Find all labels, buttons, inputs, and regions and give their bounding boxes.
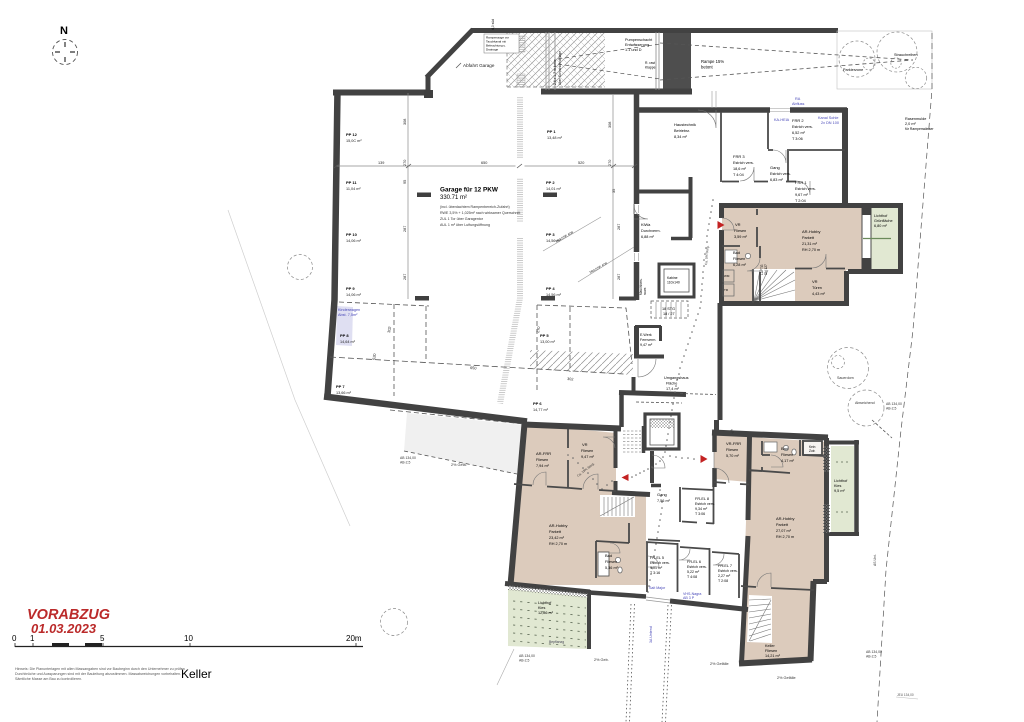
svg-text:Abfahrt Garage: Abfahrt Garage — [463, 63, 495, 68]
svg-text:PP 6: PP 6 — [533, 401, 542, 406]
svg-text:AB 134,00: AB 134,00 — [886, 402, 902, 406]
svg-text:PP 8: PP 8 — [340, 333, 349, 338]
svg-text:95: 95 — [403, 180, 407, 184]
svg-text:AB-2,5: AB-2,5 — [519, 659, 529, 663]
svg-text:7,94 m²: 7,94 m² — [536, 464, 550, 468]
svg-text:2% Gefälle: 2% Gefälle — [710, 662, 729, 666]
svg-text:VR-FRR: VR-FRR — [726, 441, 741, 446]
svg-text:17,4 m²: 17,4 m² — [666, 387, 680, 391]
svg-text:Parkett: Parkett — [802, 236, 815, 240]
svg-text:13,48 m²: 13,48 m² — [547, 136, 563, 140]
svg-text:13,00 m²: 13,00 m² — [540, 340, 556, 344]
svg-text:PP 2: PP 2 — [546, 180, 555, 185]
svg-text:für Rampenwässer: für Rampenwässer — [905, 127, 934, 131]
svg-text:FR-EL 8: FR-EL 8 — [695, 497, 709, 501]
svg-text:Klappe: Klappe — [645, 66, 656, 70]
svg-text:14,21 m²: 14,21 m² — [765, 654, 781, 658]
svg-text:AB-2,5: AB-2,5 — [400, 461, 410, 465]
svg-text:raum: raum — [643, 287, 647, 295]
svg-text:KiWa: KiWa — [641, 222, 651, 227]
svg-text:Fliesen: Fliesen — [765, 649, 777, 653]
svg-text:Sämtliche Masse am Bau zu kont: Sämtliche Masse am Bau zu kontrollieren. — [15, 677, 82, 681]
svg-text:Pumpenschacht: Pumpenschacht — [625, 38, 653, 42]
svg-text:AUL 1 m² über Luftungsöffnung: AUL 1 m² über Luftungsöffnung — [440, 223, 490, 227]
svg-text:9,47 m²: 9,47 m² — [581, 455, 595, 459]
svg-text:Fliesen: Fliesen — [781, 453, 793, 457]
svg-text:Haustechnik: Haustechnik — [674, 122, 696, 127]
svg-text:Drainage: Drainage — [486, 48, 499, 52]
svg-text:VR: VR — [812, 279, 818, 284]
svg-text:Fliesen: Fliesen — [726, 448, 738, 452]
svg-text:139: 139 — [378, 161, 384, 165]
svg-text:14,64 m²: 14,64 m² — [340, 340, 356, 344]
svg-text:VR: VR — [735, 222, 741, 227]
svg-text:Estrich vers.: Estrich vers. — [770, 172, 791, 176]
svg-text:2% Gefälle: 2% Gefälle — [777, 676, 796, 680]
svg-text:T 4:08: T 4:08 — [687, 575, 697, 579]
svg-text:2,27 m²: 2,27 m² — [718, 574, 731, 578]
svg-text:14,06 m²: 14,06 m² — [346, 293, 362, 297]
svg-text:Estrich vers.: Estrich vers. — [687, 565, 707, 569]
svg-text:Gang: Gang — [770, 165, 780, 170]
svg-text:Türen: Türen — [812, 286, 822, 290]
svg-text:5,36 m²: 5,36 m² — [605, 566, 619, 570]
svg-text:287: 287 — [617, 224, 621, 230]
svg-text:WM: WM — [724, 274, 730, 278]
svg-text:Fliesen: Fliesen — [605, 560, 617, 564]
svg-text:Fläche: Fläche — [666, 382, 677, 386]
svg-text:PP 11: PP 11 — [346, 180, 357, 185]
svg-text:9,34 m²: 9,34 m² — [695, 507, 708, 511]
svg-text:PP 5: PP 5 — [540, 333, 549, 338]
svg-text:Parkierzone: Parkierzone — [843, 68, 863, 72]
svg-text:5,70 m²: 5,70 m² — [726, 454, 740, 458]
svg-text:AB-2,5: AB-2,5 — [866, 655, 876, 659]
svg-text:27,07 m²: 27,07 m² — [776, 529, 792, 533]
svg-text:35: 35 — [612, 189, 616, 193]
svg-text:T 2:08: T 2:08 — [718, 579, 728, 583]
svg-text:Lichthof: Lichthof — [538, 601, 552, 605]
svg-text:(incl. überdachtem Rampenberei: (incl. überdachtem Rampenbereich-Zufahrt… — [440, 205, 510, 209]
svg-text:Strauchreihen: Strauchreihen — [894, 53, 918, 57]
svg-text:Estrich vers.: Estrich vers. — [792, 125, 813, 129]
svg-text:9,5 m²: 9,5 m² — [834, 489, 845, 493]
svg-text:18 STG: 18 STG — [662, 307, 675, 311]
svg-text:AR-Hobby: AR-Hobby — [549, 523, 567, 528]
svg-text:Bepflanzg: Bepflanzg — [549, 640, 564, 644]
svg-text:FRR 3: FRR 3 — [733, 154, 745, 159]
svg-text:JEU 134,00: JEU 134,00 — [897, 693, 914, 697]
svg-text:1: 1 — [30, 634, 35, 643]
svg-text:287: 287 — [617, 274, 621, 280]
svg-text:RA: RA — [795, 97, 801, 101]
svg-text:ZUL 1 Tor über Garagentor: ZUL 1 Tor über Garagentor — [440, 217, 484, 221]
svg-text:betont: betont — [701, 65, 713, 70]
svg-text:PP 7: PP 7 — [336, 384, 345, 389]
svg-text:14,77 m²: 14,77 m² — [533, 408, 549, 412]
svg-text:FR-EL 6: FR-EL 6 — [687, 560, 701, 564]
svg-text:E.Werk: E.Werk — [640, 333, 652, 337]
svg-text:0: 0 — [12, 634, 17, 643]
svg-text:6,52 m²: 6,52 m² — [792, 131, 806, 135]
svg-text:FR-EL 5: FR-EL 5 — [650, 556, 664, 560]
svg-text:3A Untend: 3A Untend — [649, 626, 653, 643]
svg-text:PP 4: PP 4 — [546, 286, 555, 291]
svg-text:4,0 süd: 4,0 süd — [491, 19, 495, 30]
svg-text:AB-2,5: AB-2,5 — [886, 407, 896, 411]
svg-text:Gang: Gang — [657, 492, 667, 497]
svg-text:2% Gefä.: 2% Gefä. — [451, 463, 467, 467]
svg-text:2x DN 100: 2x DN 100 — [821, 121, 839, 125]
svg-text:13,66 m²: 13,66 m² — [336, 391, 352, 395]
svg-text:Bad: Bad — [733, 250, 740, 255]
svg-text:7,56 m²: 7,56 m² — [657, 499, 671, 503]
svg-text:Kabine: Kabine — [667, 276, 678, 280]
svg-text:15,0C m²: 15,0C m² — [346, 139, 362, 143]
svg-text:PP 1: PP 1 — [547, 129, 556, 134]
svg-text:Parkett: Parkett — [549, 530, 562, 534]
svg-text:Fernverm.: Fernverm. — [640, 338, 656, 342]
svg-text:RH 2,70 m: RH 2,70 m — [802, 248, 820, 252]
svg-text:Kinderwagen: Kinderwagen — [338, 308, 360, 312]
svg-text:AR-Hobby: AR-Hobby — [802, 229, 820, 234]
svg-text:Estrich vers.: Estrich vers. — [650, 561, 670, 565]
svg-text:Keller: Keller — [765, 644, 775, 648]
svg-text:AB 3 P: AB 3 P — [683, 596, 695, 600]
svg-text:287: 287 — [403, 226, 407, 232]
svg-text:über Schrankenanlage: über Schrankenanlage — [558, 51, 562, 85]
svg-text:PP 12: PP 12 — [346, 132, 358, 137]
svg-text:Estrich vers.: Estrich vers. — [695, 502, 715, 506]
svg-text:302: 302 — [567, 377, 574, 382]
svg-text:Fliesen: Fliesen — [581, 449, 593, 453]
svg-text:Rasenmulde: Rasenmulde — [905, 117, 926, 121]
svg-text:Abst. 7,5m²: Abst. 7,5m² — [338, 313, 358, 317]
svg-text:4,43 m²: 4,43 m² — [812, 292, 826, 296]
svg-text:DN 127: DN 127 — [764, 264, 768, 275]
svg-text:Sait Major: Sait Major — [649, 586, 666, 590]
svg-text:Fliesen: Fliesen — [733, 257, 745, 261]
svg-text:N: N — [60, 25, 68, 37]
svg-text:Fliesen: Fliesen — [734, 229, 746, 233]
svg-text:Lichthof: Lichthof — [874, 214, 888, 218]
svg-text:R. rast: R. rast — [645, 61, 655, 65]
svg-text:9,67 m²: 9,67 m² — [795, 193, 809, 197]
svg-text:Betriebsr.: Betriebsr. — [674, 129, 690, 133]
svg-text:FR-EL 7: FR-EL 7 — [718, 564, 732, 568]
svg-text:Bad: Bad — [605, 553, 612, 558]
svg-text:T 2:04: T 2:04 — [795, 199, 806, 203]
svg-text:Abfluss: Abfluss — [792, 102, 805, 106]
svg-text:Fliesen: Fliesen — [536, 458, 548, 462]
svg-text:Kies: Kies — [538, 606, 545, 610]
svg-text:650: 650 — [481, 161, 487, 165]
svg-text:14,06 m²: 14,06 m² — [346, 239, 362, 243]
svg-text:AB 134,00: AB 134,00 — [866, 650, 882, 654]
svg-text:PP 10: PP 10 — [346, 232, 358, 237]
svg-text:3,59 m²: 3,59 m² — [734, 235, 748, 239]
svg-text:T 3:06: T 3:06 — [695, 512, 705, 516]
svg-text:23,42 m²: 23,42 m² — [549, 536, 565, 540]
svg-text:2,0 m²: 2,0 m² — [905, 122, 916, 126]
svg-text:20m: 20m — [346, 634, 362, 643]
svg-text:RH 2,70 m: RH 2,70 m — [549, 542, 567, 546]
svg-text:T 4:04: T 4:04 — [733, 173, 744, 177]
svg-text:8,34 m²: 8,34 m² — [674, 135, 688, 139]
svg-text:Abweichend: Abweichend — [855, 401, 875, 405]
svg-text:2,6 x 1,7 m lichte: 2,6 x 1,7 m lichte — [553, 59, 557, 85]
svg-text:Keller: Keller — [181, 667, 212, 681]
svg-text:Rampe 15%: Rampe 15% — [701, 59, 724, 64]
svg-text:6,28 m²: 6,28 m² — [733, 263, 747, 267]
svg-text:Estrich vers.: Estrich vers. — [733, 161, 754, 165]
svg-text:1.1 und D: 1.1 und D — [625, 48, 642, 52]
svg-text:Durchbrüche und Aussparungen s: Durchbrüche und Aussparungen sind mit de… — [15, 672, 181, 676]
svg-text:Kanal Sohle: Kanal Sohle — [818, 116, 838, 120]
svg-text:AR-Hobby: AR-Hobby — [776, 516, 794, 521]
svg-text:T 3:16: T 3:16 — [650, 571, 660, 575]
svg-text:Sauerdorn: Sauerdorn — [837, 376, 854, 380]
svg-text:AB 134,00: AB 134,00 — [400, 456, 416, 460]
svg-text:21,31 m²: 21,31 m² — [802, 242, 818, 246]
svg-text:Entwässerung: Entwässerung — [625, 43, 649, 47]
svg-text:Hinweis: Die Planunterlagen mi: Hinweis: Die Planunterlagen mit allen Ma… — [15, 667, 185, 671]
svg-text:Grünfläche: Grünfläche — [874, 219, 893, 223]
svg-text:T 3:06: T 3:06 — [792, 137, 803, 141]
svg-text:01.03.2023: 01.03.2023 — [31, 621, 97, 636]
svg-text:Garage für 12 PKW: Garage für 12 PKW — [440, 187, 499, 194]
svg-text:6,80 m²: 6,80 m² — [874, 224, 888, 228]
svg-text:Parkett: Parkett — [776, 523, 789, 527]
svg-text:9,47 m²: 9,47 m² — [640, 343, 653, 347]
svg-text:5: 5 — [100, 634, 105, 643]
svg-text:FRR 1: FRR 1 — [795, 180, 807, 185]
svg-text:330.71 m²: 330.71 m² — [440, 195, 467, 201]
svg-text:308: 308 — [608, 122, 612, 128]
svg-text:2% Geb.: 2% Geb. — [594, 658, 609, 662]
svg-text:VR: VR — [582, 442, 588, 447]
svg-text:308: 308 — [403, 119, 407, 125]
svg-text:RH 2,70 m: RH 2,70 m — [776, 535, 794, 539]
svg-text:6,83 m²: 6,83 m² — [770, 178, 784, 182]
svg-text:KA-HEIA: KA-HEIA — [774, 118, 790, 122]
svg-text:11,04 m²: 11,04 m² — [346, 187, 361, 191]
svg-text:5,22 m²: 5,22 m² — [687, 570, 700, 574]
svg-text:Umgangshaus: Umgangshaus — [664, 376, 689, 380]
svg-text:AR-FRR: AR-FRR — [536, 451, 551, 456]
svg-text:Estrich vers.: Estrich vers. — [795, 187, 816, 191]
svg-text:Bad: Bad — [781, 446, 788, 451]
svg-text:4,17 m²: 4,17 m² — [781, 459, 795, 463]
svg-text:Zutr.: Zutr. — [809, 449, 816, 453]
svg-text:18 / 27: 18 / 27 — [663, 312, 675, 316]
svg-text:650: 650 — [470, 366, 477, 371]
svg-text:AB 134,00: AB 134,00 — [519, 654, 535, 658]
svg-text:18,6 m²: 18,6 m² — [733, 167, 747, 171]
svg-text:PP 3: PP 3 — [546, 232, 555, 237]
svg-text:520: 520 — [578, 161, 584, 165]
svg-text:9,01 m²: 9,01 m² — [650, 566, 663, 570]
svg-text:PP 9: PP 9 — [346, 286, 355, 291]
svg-text:270: 270 — [403, 160, 407, 166]
svg-text:14,56 m²: 14,56 m² — [546, 293, 562, 297]
svg-text:14,01 m²: 14,01 m² — [546, 187, 562, 191]
svg-text:Kies: Kies — [834, 484, 841, 488]
svg-text:RWE 3,5% + 1,025m² nach wirksa: RWE 3,5% + 1,025m² nach wirksamer Quersc… — [440, 211, 520, 215]
svg-text:FRR 2: FRR 2 — [792, 118, 804, 123]
svg-text:10: 10 — [184, 634, 193, 643]
svg-text:Estrich vers.: Estrich vers. — [718, 569, 738, 573]
svg-text:110x140: 110x140 — [667, 281, 680, 285]
svg-text:AS Unt.: AS Unt. — [873, 554, 877, 566]
svg-text:12,86 m²: 12,86 m² — [538, 611, 554, 615]
svg-text:270: 270 — [608, 160, 612, 166]
svg-text:Lichthof: Lichthof — [834, 479, 848, 483]
svg-text:Durchverm.: Durchverm. — [641, 229, 661, 233]
svg-text:287: 287 — [403, 274, 407, 280]
svg-text:6,88 m²: 6,88 m² — [641, 235, 655, 239]
